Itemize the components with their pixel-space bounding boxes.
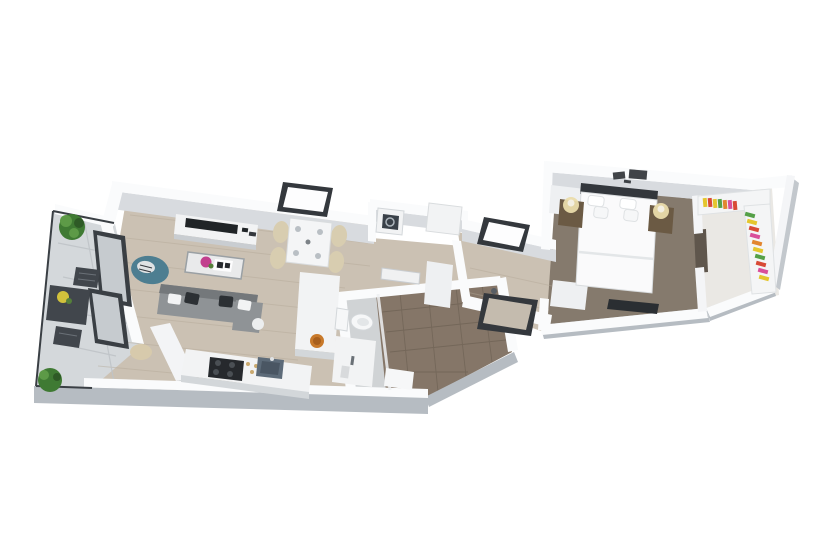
- bed-pillow: [587, 195, 604, 207]
- magazine-print: [217, 262, 224, 269]
- gas-stove: [208, 357, 244, 381]
- clothes-item: [708, 198, 713, 207]
- clothes-item: [703, 198, 708, 207]
- plant-leaf: [60, 215, 72, 227]
- plant-leaf: [39, 370, 49, 380]
- bed-pillow: [623, 209, 638, 222]
- magazine-print: [225, 263, 231, 269]
- place-setting: [315, 253, 321, 259]
- spice-jar: [250, 370, 254, 374]
- spice-jar: [246, 362, 250, 366]
- sofa-pillow-white: [167, 293, 181, 305]
- pouf: [130, 344, 152, 360]
- burner: [213, 369, 219, 375]
- plant-leaf: [74, 218, 84, 228]
- place-setting: [317, 229, 323, 235]
- double-bed: [576, 192, 657, 293]
- floorplan-render: [0, 0, 820, 560]
- clothes-item: [713, 199, 718, 208]
- floorplan-svg: [0, 0, 820, 560]
- remote: [242, 228, 248, 233]
- closet-partition-doorway: [694, 229, 708, 273]
- bath-vanity: [332, 336, 376, 387]
- burner: [227, 371, 233, 377]
- shower-head: [491, 288, 497, 294]
- bathroom-door: [424, 261, 453, 308]
- burner: [229, 362, 235, 368]
- clothes-item: [723, 200, 728, 209]
- wall-art-piece: [613, 171, 626, 179]
- table-lamp: [568, 200, 575, 207]
- outdoor-chair: [73, 267, 100, 288]
- sofa-pillow-pattern: [218, 295, 233, 307]
- flower-pot-leaf: [66, 298, 72, 304]
- magazine: [213, 259, 233, 272]
- nook-west-wall-top: [368, 202, 376, 242]
- side-table: [252, 318, 264, 330]
- bed-pillow: [619, 198, 636, 210]
- vanity-towel: [340, 366, 350, 379]
- clothes-item: [733, 201, 738, 210]
- washer-door: [382, 214, 399, 230]
- clothes-item: [718, 199, 723, 208]
- place-setting: [295, 226, 301, 232]
- clothes-item: [728, 200, 733, 209]
- bed-pillow: [593, 206, 608, 219]
- decor-bowl-inner: [313, 337, 321, 345]
- toilet-tank: [335, 308, 349, 331]
- table-centerpiece: [306, 240, 311, 245]
- kitchen-sink-basin: [260, 361, 280, 375]
- plant-leaf: [53, 373, 61, 381]
- plant-leaf: [69, 228, 79, 238]
- faucet: [270, 357, 274, 361]
- vase-flowers-leaf: [209, 264, 214, 269]
- outdoor-table: [46, 285, 90, 325]
- hall-cabinet: [426, 203, 462, 235]
- place-setting: [293, 250, 299, 256]
- table-lamp: [658, 206, 665, 213]
- wall-art-piece: [629, 169, 648, 180]
- burner: [215, 360, 221, 366]
